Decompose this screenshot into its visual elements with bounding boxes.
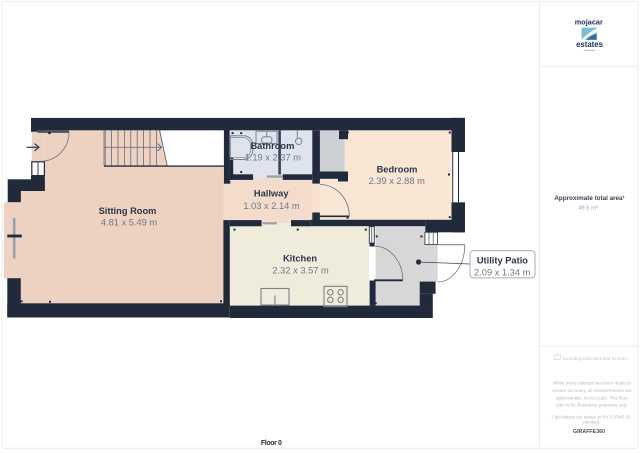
svg-text:49.5 m²: 49.5 m² <box>578 206 598 212</box>
svg-text:GIRAFFE360: GIRAFFE360 <box>573 429 605 435</box>
svg-text:Approximate total area¹: Approximate total area¹ <box>554 195 624 202</box>
svg-text:Bathroom: Bathroom <box>250 141 294 151</box>
svg-text:Bedroom: Bedroom <box>377 164 418 174</box>
svg-text:2.09 x 1.34 m: 2.09 x 1.34 m <box>474 267 531 277</box>
svg-text:4.81 x 5.49 m: 4.81 x 5.49 m <box>101 218 158 228</box>
svg-text:Hallway: Hallway <box>254 188 289 198</box>
svg-text:Sitting Room: Sitting Room <box>99 206 157 216</box>
svg-text:Excluding balconies and terrac: Excluding balconies and terraces <box>563 356 628 361</box>
svg-text:Utility Patio: Utility Patio <box>477 256 528 266</box>
svg-text:ensure accuracy, all measureme: ensure accuracy, all measurements are <box>552 388 632 393</box>
svg-text:Floor 0: Floor 0 <box>261 440 282 447</box>
svg-text:mojacar: mojacar <box>575 17 603 26</box>
svg-text:standard.: standard. <box>582 419 600 424</box>
svg-text:plan is for illustrative purpo: plan is for illustrative purposes only. <box>556 403 628 408</box>
svg-text:2.39 x 2.88 m: 2.39 x 2.88 m <box>369 176 426 186</box>
svg-text:1.19 x 2.37 m: 1.19 x 2.37 m <box>245 153 302 163</box>
svg-text:Kitchen: Kitchen <box>283 254 317 264</box>
svg-text:2.32 x 3.57 m: 2.32 x 3.57 m <box>272 266 329 276</box>
svg-text:While every attempt has been m: While every attempt has been made to <box>553 381 631 386</box>
svg-text:1.03 x 2.14 m: 1.03 x 2.14 m <box>243 201 300 211</box>
svg-text:estates: estates <box>576 40 604 49</box>
svg-text:approximate, not to scale. Thi: approximate, not to scale. This floor <box>556 395 628 400</box>
